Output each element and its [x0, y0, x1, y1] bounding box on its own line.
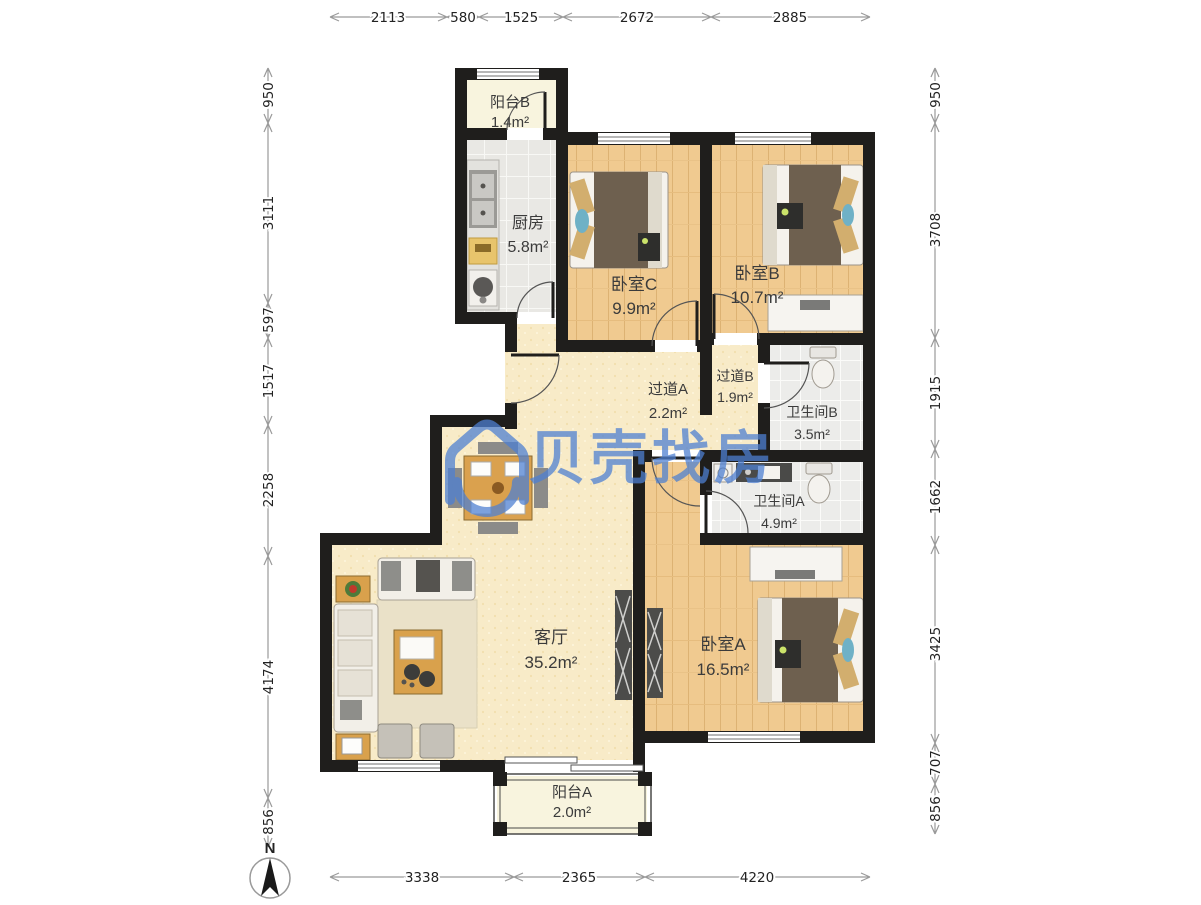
dims-top: 2113 580 1525 2672 2885: [330, 10, 870, 26]
dim-left-2: 3111: [261, 196, 277, 230]
dims-bottom: 3338 2365 4220: [330, 870, 870, 886]
living-room-window: [358, 761, 440, 771]
room-label-balcony-b: 阳台B: [490, 94, 530, 111]
dim-left-7: 856: [261, 809, 277, 835]
room-area-bathroom-a: 4.9m²: [761, 515, 797, 531]
room-area-bathroom-b: 3.5m²: [794, 426, 830, 442]
dim-left-4: 1517: [261, 364, 277, 398]
bedroom-c-bed: [569, 172, 668, 268]
dim-left-5: 2258: [261, 473, 277, 507]
room-area-kitchen: 5.8m²: [508, 239, 550, 256]
room-label-bedroom-c: 卧室C: [611, 275, 657, 294]
room-area-balcony-a: 2.0m²: [553, 804, 591, 821]
bathroom-b-toilet: [810, 347, 836, 388]
floor-plan-drawing: 阳台B 1.4m² 厨房 5.8m² 卧室C 9.9m² 卧室B 10.7m² …: [0, 0, 1201, 905]
dim-bottom-3: 4220: [740, 870, 774, 886]
dim-top-5: 2885: [773, 10, 807, 26]
watermark-brand-text: 贝壳找房: [528, 426, 776, 491]
dim-right-1: 950: [928, 82, 944, 108]
dim-right-2: 3708: [928, 213, 944, 247]
bedroom-c-window: [598, 133, 670, 144]
room-label-living-room: 客厅: [534, 628, 568, 647]
room-area-living-room: 35.2m²: [525, 653, 578, 672]
room-label-bathroom-a: 卫生间A: [753, 493, 805, 509]
dim-top-4: 2672: [620, 10, 654, 26]
north-arrow-icon: [261, 858, 279, 896]
room-label-hallway-b: 过道B: [716, 368, 753, 384]
room-label-hallway-a: 过道A: [648, 381, 688, 398]
compass-north-label: N: [265, 840, 276, 857]
dim-left-6: 4174: [261, 660, 277, 694]
room-label-bedroom-b: 卧室B: [734, 264, 779, 283]
dim-right-7: 856: [928, 796, 944, 822]
dim-bottom-1: 3338: [405, 870, 439, 886]
dim-top-2: 580: [450, 10, 476, 26]
dim-bottom-2: 2365: [562, 870, 596, 886]
dim-top-1: 2113: [371, 10, 405, 26]
room-area-hallway-a: 2.2m²: [649, 405, 687, 422]
floor-plan-page: 阳台B 1.4m² 厨房 5.8m² 卧室C 9.9m² 卧室B 10.7m² …: [0, 0, 1201, 905]
room-label-bathroom-b: 卫生间B: [786, 404, 837, 420]
bedroom-b-window: [735, 133, 811, 144]
dim-right-5: 3425: [928, 627, 944, 661]
bedroom-a-window: [708, 732, 800, 742]
room-area-bedroom-a: 16.5m²: [697, 660, 750, 679]
room-area-bedroom-c: 9.9m²: [612, 299, 656, 318]
kitchen-counter: [467, 160, 499, 310]
compass: N: [250, 840, 290, 898]
room-area-hallway-b: 1.9m²: [717, 389, 753, 405]
room-label-bedroom-a: 卧室A: [700, 635, 746, 654]
dim-right-4: 1662: [928, 480, 944, 514]
dim-left-3: 597: [261, 307, 277, 333]
room-area-bedroom-b: 10.7m²: [731, 288, 784, 307]
dim-left-1: 950: [261, 82, 277, 108]
room-label-balcony-a: 阳台A: [552, 784, 592, 801]
dim-right-6: 707: [928, 750, 944, 776]
dim-top-3: 1525: [504, 10, 538, 26]
balcony-b-window: [477, 69, 539, 79]
room-label-kitchen: 厨房: [512, 214, 544, 232]
room-area-balcony-b: 1.4m²: [491, 114, 529, 131]
dims-left: 950 3111 597 1517 2258 4174 856: [261, 68, 277, 847]
dims-right: 950 3708 1915 1662 3425 707 856: [928, 68, 944, 834]
dim-right-3: 1915: [928, 376, 944, 410]
